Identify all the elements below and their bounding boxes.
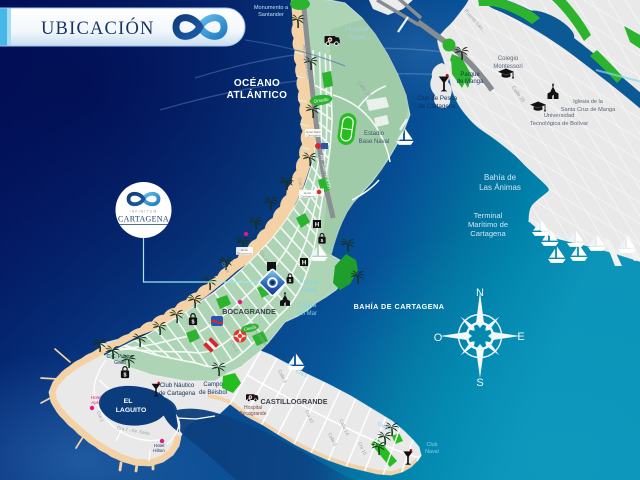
svg-text:Naval: Naval xyxy=(425,449,439,455)
svg-text:Parque: Parque xyxy=(299,280,319,286)
svg-text:Colegio: Colegio xyxy=(498,56,519,62)
svg-text:Hilton: Hilton xyxy=(153,448,165,453)
svg-text:Cartagena: Cartagena xyxy=(306,134,320,138)
svg-text:del Mar: del Mar xyxy=(297,311,317,317)
svg-text:Tecnológica de Bolívar: Tecnológica de Bolívar xyxy=(530,121,588,127)
svg-text:Campo: Campo xyxy=(203,382,223,388)
svg-text:O: O xyxy=(434,332,443,344)
svg-text:Gallo: Gallo xyxy=(114,360,126,366)
svg-text:INFINITUM: INFINITUM xyxy=(130,210,158,214)
svg-text:Montessori: Montessori xyxy=(493,64,522,70)
svg-text:Cartagena: Cartagena xyxy=(470,229,506,238)
svg-text:Naval: Naval xyxy=(349,34,365,41)
svg-text:CASTILLOGRANDE: CASTILLOGRANDE xyxy=(260,397,327,406)
svg-text:H: H xyxy=(302,261,306,267)
svg-text:N: N xyxy=(476,287,484,299)
svg-text:E: E xyxy=(517,331,524,343)
svg-text:Estadio: Estadio xyxy=(364,131,385,137)
svg-text:Marítimo de: Marítimo de xyxy=(468,220,508,229)
svg-text:BAHÍA DE CARTAGENA: BAHÍA DE CARTAGENA xyxy=(354,302,445,311)
svg-text:Bocagrande: Bocagrande xyxy=(240,411,267,417)
svg-text:Parque: Parque xyxy=(460,72,480,78)
svg-text:CARTAGENA: CARTAGENA xyxy=(118,215,169,224)
svg-text:H: H xyxy=(315,223,319,229)
svg-text:Capilla: Capilla xyxy=(298,303,317,309)
svg-text:Monumento a: Monumento a xyxy=(254,5,289,11)
svg-text:de Béisbol: de Béisbol xyxy=(199,390,227,396)
svg-text:Hospital: Hospital xyxy=(346,26,368,33)
svg-text:Club: Club xyxy=(426,442,437,448)
svg-text:Decameron: Decameron xyxy=(237,252,253,256)
svg-text:ATLÁNTICO: ATLÁNTICO xyxy=(227,88,288,101)
svg-text:Terminal: Terminal xyxy=(474,211,503,220)
svg-text:Santander: Santander xyxy=(258,12,284,18)
svg-text:Club Náutico: Club Náutico xyxy=(160,383,195,389)
svg-text:BOCAGRANDE: BOCAGRANDE xyxy=(222,307,276,316)
svg-text:Las Ánimas: Las Ánimas xyxy=(479,183,521,192)
svg-text:Naval: Naval xyxy=(301,288,316,294)
svg-text:LAGUITO: LAGUITO xyxy=(116,407,146,414)
svg-text:Cartagena: Cartagena xyxy=(300,195,314,199)
svg-text:Bahía de: Bahía de xyxy=(484,173,517,182)
svg-text:UBICACIÓN: UBICACIÓN xyxy=(41,17,155,39)
svg-text:de Manga: de Manga xyxy=(457,79,484,85)
svg-text:Base Naval: Base Naval xyxy=(359,139,390,145)
svg-text:OCÉANO: OCÉANO xyxy=(234,76,280,89)
svg-text:Apto: Apto xyxy=(91,400,101,405)
svg-text:Club de Pesca: Club de Pesca xyxy=(417,95,458,102)
svg-text:de Cartagena: de Cartagena xyxy=(159,391,196,397)
svg-text:S: S xyxy=(476,377,483,389)
svg-text:Iglesia de la: Iglesia de la xyxy=(573,99,604,105)
svg-text:EL: EL xyxy=(124,398,133,405)
svg-text:de Cartagena: de Cartagena xyxy=(418,103,456,110)
svg-text:Universidad: Universidad xyxy=(544,113,575,119)
